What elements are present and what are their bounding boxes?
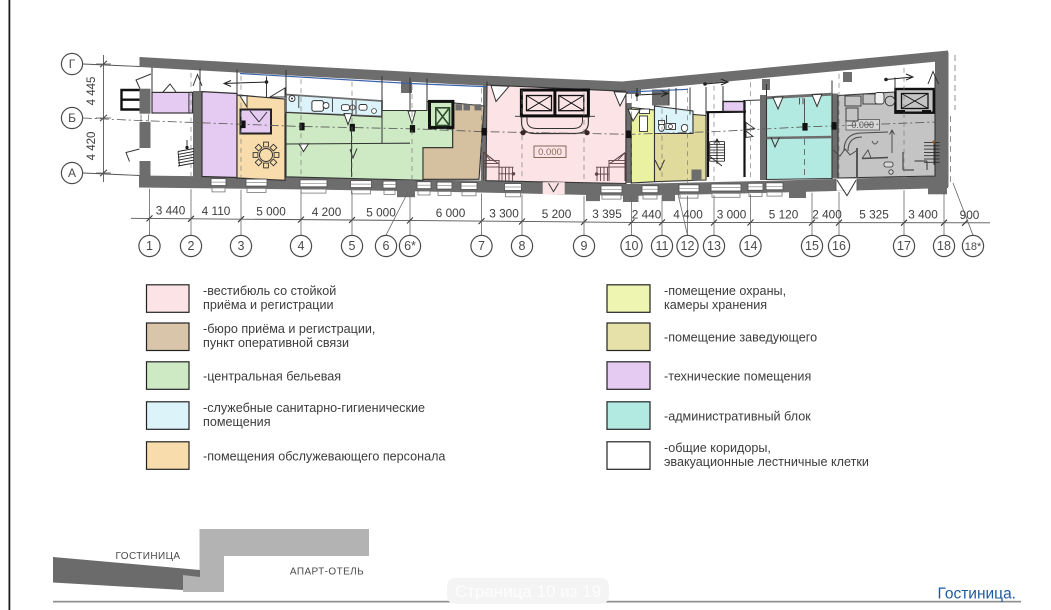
svg-text:4 445: 4 445 xyxy=(86,77,98,106)
svg-text:16: 16 xyxy=(832,239,846,253)
svg-text:5 120: 5 120 xyxy=(769,208,799,222)
svg-text:3 400: 3 400 xyxy=(908,208,938,222)
svg-text:17: 17 xyxy=(897,239,911,253)
svg-text:2 400: 2 400 xyxy=(812,208,842,222)
svg-text:2: 2 xyxy=(188,239,195,253)
svg-text:4 400: 4 400 xyxy=(673,208,703,222)
svg-text:-вестибюль со стойкой: -вестибюль со стойкой xyxy=(203,284,336,298)
svg-text:эвакуационные лестничные клетк: эвакуационные лестничные клетки xyxy=(664,455,869,469)
svg-text:-административный блок: -административный блок xyxy=(664,409,811,423)
svg-text:5: 5 xyxy=(349,239,356,253)
svg-text:8: 8 xyxy=(519,239,526,253)
svg-text:-общие коридоры,: -общие коридоры, xyxy=(664,441,771,455)
svg-text:4 110: 4 110 xyxy=(202,204,231,218)
svg-text:-помещение заведующего: -помещение заведующего xyxy=(664,331,817,345)
svg-text:-технические помещения: -технические помещения xyxy=(664,369,811,383)
svg-text:5 200: 5 200 xyxy=(542,207,572,221)
svg-text:приёма и регистрации: приёма и регистрации xyxy=(203,298,334,312)
svg-text:ГОСТИНИЦА: ГОСТИНИЦА xyxy=(116,551,181,562)
svg-text:Страница 10 из 19: Страница 10 из 19 xyxy=(455,582,601,601)
svg-text:3: 3 xyxy=(238,239,245,253)
svg-text:3 300: 3 300 xyxy=(489,206,519,220)
svg-text:6 000: 6 000 xyxy=(436,206,466,220)
svg-text:помещения: помещения xyxy=(203,415,271,429)
svg-text:10: 10 xyxy=(625,239,639,253)
svg-text:3 440: 3 440 xyxy=(156,204,186,218)
svg-text:4 200: 4 200 xyxy=(312,205,342,219)
svg-text:камеры хранения: камеры хранения xyxy=(664,298,767,312)
svg-text:12: 12 xyxy=(681,239,695,253)
svg-text:7: 7 xyxy=(478,239,485,253)
svg-text:6*: 6* xyxy=(404,239,416,253)
svg-text:3 000: 3 000 xyxy=(717,208,747,222)
svg-text:15: 15 xyxy=(805,239,819,253)
svg-text:900: 900 xyxy=(960,208,980,222)
svg-text:АПАРТ-ОТЕЛЬ: АПАРТ-ОТЕЛЬ xyxy=(290,567,364,578)
svg-text:4 420: 4 420 xyxy=(86,132,98,161)
svg-text:18*: 18* xyxy=(965,241,982,253)
svg-text:1: 1 xyxy=(146,239,153,253)
svg-text:11: 11 xyxy=(656,239,669,253)
svg-text:5 000: 5 000 xyxy=(366,205,396,219)
svg-text:5 000: 5 000 xyxy=(256,204,286,218)
svg-text:18: 18 xyxy=(937,239,951,253)
svg-text:6: 6 xyxy=(383,239,390,253)
svg-text:пункт оперативной связи: пункт оперативной связи xyxy=(203,336,349,350)
svg-text:Б: Б xyxy=(68,111,76,125)
svg-text:0.000: 0.000 xyxy=(538,147,562,158)
svg-text:А: А xyxy=(68,166,76,180)
svg-text:-бюро приёма и регистрации,: -бюро приёма и регистрации, xyxy=(203,322,375,336)
svg-text:-служебные санитарно-гигиениче: -служебные санитарно-гигиенические xyxy=(203,401,425,415)
svg-text:2 440: 2 440 xyxy=(632,207,662,221)
svg-text:14: 14 xyxy=(744,239,758,253)
svg-text:-центральная бельевая: -центральная бельевая xyxy=(203,369,341,383)
svg-text:-помещение охраны,: -помещение охраны, xyxy=(664,284,786,298)
svg-text:9: 9 xyxy=(581,239,588,253)
svg-text:4: 4 xyxy=(298,239,305,253)
svg-text:13: 13 xyxy=(707,239,721,253)
svg-text:3 395: 3 395 xyxy=(592,207,622,221)
svg-text:Г: Г xyxy=(69,57,76,71)
svg-text:Гостиница.: Гостиница. xyxy=(937,586,1016,603)
svg-text:5 325: 5 325 xyxy=(859,208,889,222)
svg-text:-помещения обслужевающего перс: -помещения обслужевающего персонала xyxy=(203,449,445,463)
